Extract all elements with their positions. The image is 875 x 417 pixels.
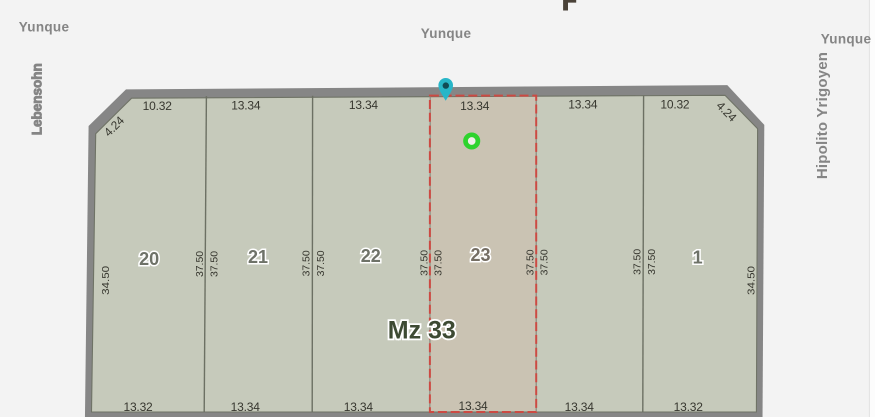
svg-text:13.34: 13.34 xyxy=(349,98,379,112)
svg-text:37.50: 37.50 xyxy=(647,248,658,274)
svg-text:13.34: 13.34 xyxy=(565,400,595,414)
svg-text:13.32: 13.32 xyxy=(123,400,153,414)
svg-text:37.50: 37.50 xyxy=(210,251,221,277)
svg-text:37.50: 37.50 xyxy=(316,250,327,276)
svg-text:Yunque: Yunque xyxy=(421,26,472,41)
svg-text:37.50: 37.50 xyxy=(419,249,430,275)
svg-text:37.50: 37.50 xyxy=(540,249,551,275)
svg-text:22: 22 xyxy=(361,246,381,266)
svg-text:1: 1 xyxy=(693,247,703,267)
svg-text:37.50: 37.50 xyxy=(434,249,445,275)
svg-text:Yunque: Yunque xyxy=(821,32,872,47)
svg-text:13.32: 13.32 xyxy=(674,400,704,414)
svg-text:13.34: 13.34 xyxy=(231,400,261,414)
svg-text:21: 21 xyxy=(248,247,268,267)
svg-text:37.50: 37.50 xyxy=(525,249,536,275)
svg-text:13.34: 13.34 xyxy=(344,400,374,414)
svg-text:13.34: 13.34 xyxy=(458,399,488,413)
svg-text:37.50: 37.50 xyxy=(302,250,313,276)
svg-text:34.50: 34.50 xyxy=(746,266,758,295)
svg-text:Yunque: Yunque xyxy=(19,20,70,35)
svg-text:10.32: 10.32 xyxy=(143,99,173,113)
svg-text:23: 23 xyxy=(470,245,490,265)
svg-text:34.50: 34.50 xyxy=(100,266,112,295)
svg-text:37.50: 37.50 xyxy=(195,251,206,277)
svg-text:Lebensohn: Lebensohn xyxy=(30,63,45,135)
svg-text:Hipolito Yrigoyen: Hipolito Yrigoyen xyxy=(814,52,831,179)
svg-text:Mz 33: Mz 33 xyxy=(388,316,456,344)
svg-text:37.50: 37.50 xyxy=(633,248,644,274)
svg-text:20: 20 xyxy=(139,249,159,269)
svg-text:13.34: 13.34 xyxy=(568,98,598,112)
svg-text:13.34: 13.34 xyxy=(231,99,261,113)
svg-text:10.32: 10.32 xyxy=(660,98,690,112)
svg-text:13.34: 13.34 xyxy=(460,99,490,113)
